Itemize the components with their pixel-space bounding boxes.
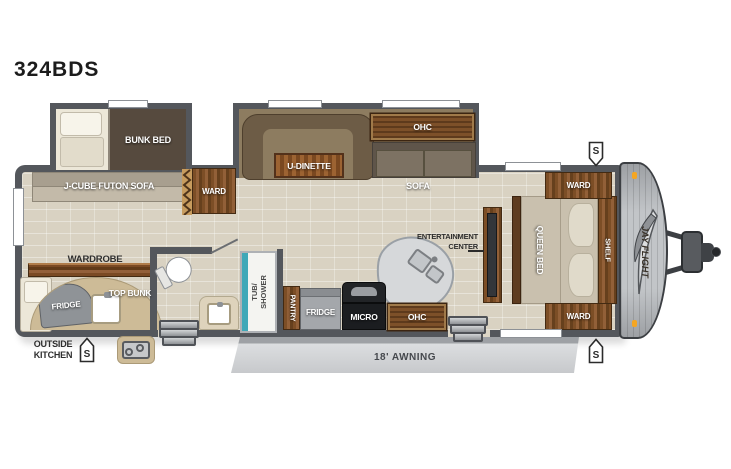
range-handle [351,287,377,296]
bunk-slide-window [108,100,148,108]
bunk-pillow [60,112,102,136]
speaker-badge-front-top: S [588,141,604,172]
bath-vanity [199,296,239,330]
main-entry-steps [447,318,489,342]
mid-ward-label: WARD [202,187,226,196]
entertainment-center-label: ENTERTAINMENT CENTER [394,232,478,252]
shelf-label: SHELF [603,238,612,262]
sofa-cushion-left [376,150,424,177]
bedroom-shelf: SHELF [598,196,617,304]
speaker-badge-front-bottom: S [588,338,604,369]
speaker-badge-letter: S [593,350,600,361]
front-cap: JAY FLIGHT [619,162,668,339]
bunk-slideout: BUNK BED [50,103,192,176]
floorplan-canvas: 324BDS BUNK BED U-DINETTE OHC [0,0,731,469]
kitchen-fridge: FRIDGE [300,288,341,330]
marker-light-bottom [632,320,637,327]
bunk-mattress [56,109,110,170]
queen-bed-mattress: QUEEN BED [521,196,598,304]
cooktop-panel [122,341,150,359]
speaker-badge-letter: S [593,146,600,157]
front-ward-top-label: WARD [567,181,591,190]
pantry-label: PANTRY [288,295,295,322]
sofa-furniture [372,142,476,178]
sofa-label: SOFA [406,181,430,191]
bunk-blanket [60,137,104,167]
futon-sofa-label: J-CUBE FUTON SOFA [64,181,154,191]
brand-text: JAY FLIGHT [640,226,650,279]
micro-label: MICRO [350,312,377,322]
outside-cooktop-icon [117,336,155,364]
front-ward-top: WARD [545,172,612,199]
u-dinette-table: U-DINETTE [274,153,344,178]
queen-pillow-top [568,203,594,247]
mattress-crease [560,197,561,303]
queen-pillow-bottom [568,253,594,297]
speaker-badge-letter: S [84,349,91,360]
dinette-ohc-label: OHC [413,122,431,132]
jay-flight-logo: JAY FLIGHT [623,202,667,302]
awning-band: 18' AWNING [231,337,579,373]
dinette-slide-window-right [382,100,460,108]
u-dinette-label: U-DINETTE [287,161,331,171]
mid-wardrobe-cabinet: WARD [192,168,236,214]
tub-shower: TUB/ SHOWER [240,251,277,333]
bedroom-top-window [505,162,561,171]
kitchen-fridge-label: FRIDGE [306,308,335,317]
kitchen-ohc-cabinet: OHC [388,304,446,330]
sofa-cushion-right [424,150,472,177]
front-ward-bottom: WARD [545,303,612,330]
vanity-faucet [217,302,223,307]
dinette-sofa-slideout: U-DINETTE OHC [233,103,479,178]
shower-accent-strip [242,253,248,331]
tub-shower-label: TUB/ SHOWER [250,275,268,309]
queen-bed-footboard [512,196,521,304]
tv-screen [487,213,497,297]
rear-wall-window [13,188,24,246]
dinette-ohc-cabinet: OHC [371,114,474,140]
step-tread [162,336,196,346]
marker-light-top [632,172,637,179]
range-cooktop [342,282,386,303]
outside-fridge: FRIDGE [37,281,95,328]
entertainment-pointer-line [468,250,484,252]
bath-entry-steps [158,322,200,346]
front-ward-bottom-label: WARD [567,312,591,321]
pantry-cabinet: PANTRY [283,286,300,330]
microwave: MICRO [342,303,386,330]
queen-bed-label: QUEEN BED [535,226,545,275]
entertainment-console [483,207,502,303]
outside-fridge-label: FRIDGE [51,299,81,311]
step-tread [453,332,483,342]
kitchen-ohc-label: OHC [408,312,426,322]
bunk-bed-label: BUNK BED [125,135,171,145]
bedroom-bottom-window [500,329,562,338]
wardrobe-label: WARDROBE [68,254,123,265]
model-title: 324BDS [14,58,99,82]
accordion-door [182,169,192,215]
awning-label: 18' AWNING [374,352,436,363]
top-bunk-label: TOP BUNK [109,288,151,298]
outside-kitchen-label: OUTSIDE KITCHEN [26,339,80,361]
j-cube-futon-sofa: J-CUBE FUTON SOFA [32,172,186,202]
hitch-ball [711,247,721,257]
cooktop-burner-right [136,344,144,352]
propane-tank-cover [681,231,703,273]
cooktop-burner-left [125,348,133,356]
dinette-slide-window-left [268,100,322,108]
vanity-sink [207,303,231,325]
speaker-badge-outside-kitchen: S [79,337,95,368]
